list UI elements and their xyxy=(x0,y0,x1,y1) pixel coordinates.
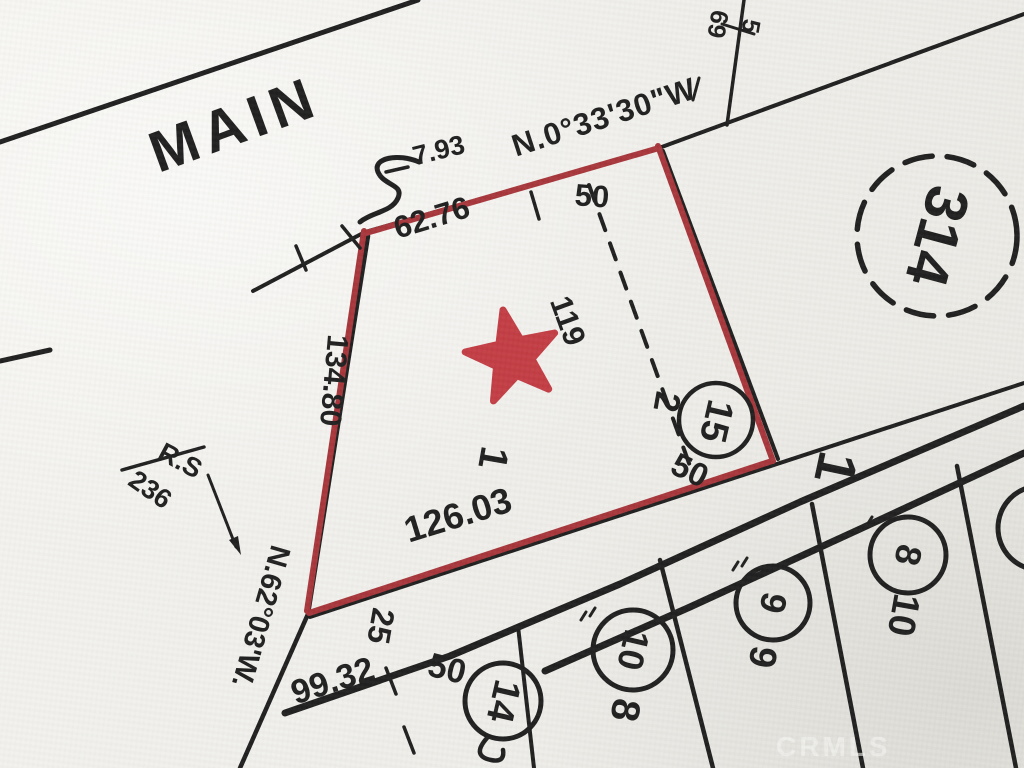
dim-lower-50: 50 xyxy=(425,648,470,690)
dim-strip-25: 25 xyxy=(362,606,400,647)
frontage-tick xyxy=(531,192,539,219)
ditto-mark-9b xyxy=(742,558,747,566)
crmls-watermark: CRMLS xyxy=(776,733,891,761)
lot-line-9-8 xyxy=(812,504,863,768)
dot-1 xyxy=(311,300,317,306)
dim-north-50: 50 xyxy=(574,179,611,212)
number-below-lot-8: 10 xyxy=(881,591,926,639)
plat-linework xyxy=(0,0,1024,768)
dot-3 xyxy=(329,319,335,325)
rs-arrowhead xyxy=(229,536,241,555)
lot-14-tail xyxy=(480,738,503,761)
main-street-south-line-left xyxy=(0,350,50,361)
lot-upper-69: 69 xyxy=(702,8,731,40)
rs-leader-line xyxy=(208,475,236,547)
ditto-mark-10a xyxy=(581,612,586,620)
dot-2 xyxy=(320,310,326,316)
star-marker xyxy=(465,310,554,401)
interior-dashed-divider xyxy=(589,185,690,466)
lot-number-14: 14 xyxy=(480,676,527,726)
dim-west-13480: 134.80 xyxy=(314,333,352,427)
lot-circle-partial-right xyxy=(998,486,1024,570)
ditto-mark-10b xyxy=(590,608,595,616)
lot-number-15: 15 xyxy=(693,396,740,446)
offset-dash xyxy=(386,167,408,172)
ditto-mark-9a xyxy=(733,562,738,570)
lot-number-10: 10 xyxy=(611,626,655,673)
lot-line-8-east xyxy=(957,466,1016,768)
plat-map-photo: MAIN N.0°33'30"W 7.93 62.76 50 69 5 314 … xyxy=(0,0,1024,768)
lower-tick-2 xyxy=(404,727,414,753)
